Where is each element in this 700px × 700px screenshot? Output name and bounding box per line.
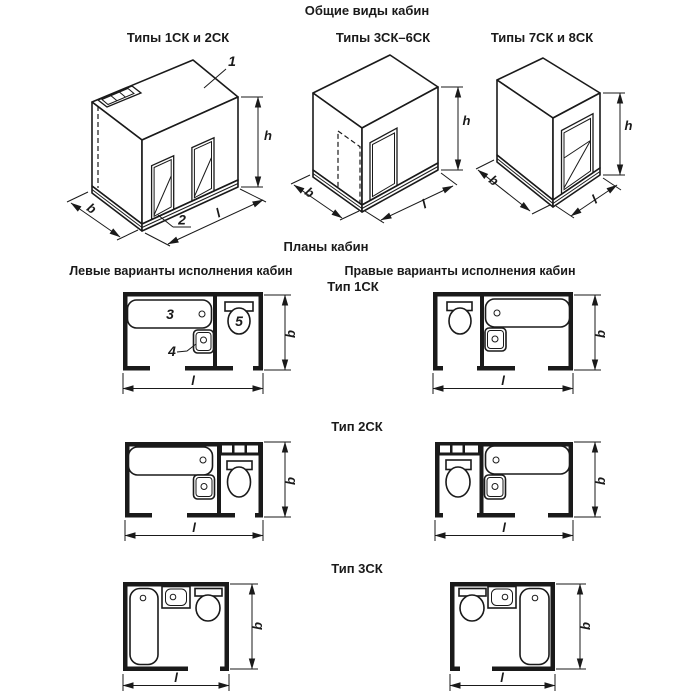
plan-1sk-left: 3 4 5 b l [115, 288, 300, 400]
iso-view-types-3sk-6sk: h b l [285, 45, 470, 230]
svg-text:l: l [213, 205, 223, 220]
bathtub [129, 447, 213, 475]
dimension-b: b [574, 295, 608, 370]
dimension-l: l [123, 670, 229, 691]
svg-text:4: 4 [167, 343, 176, 359]
svg-text:l: l [589, 192, 601, 207]
plan-3sk-left: b l [115, 578, 275, 696]
dimension-l: l [435, 520, 573, 541]
dimension-l: l [433, 373, 573, 394]
type-2sk-label: Тип 2СК [277, 420, 437, 435]
toilet [195, 589, 222, 622]
dimension-l: l [125, 520, 263, 541]
bathtub [486, 446, 570, 474]
plan-3sk-right: b l [442, 578, 602, 696]
svg-text:l: l [419, 196, 429, 211]
washbasin [194, 475, 215, 499]
drawing-canvas: Общие виды кабин Типы 1СК и 2СК Типы 3СК… [0, 0, 700, 700]
bathtub [130, 589, 158, 665]
svg-text:l: l [500, 670, 504, 685]
bathtub [520, 589, 549, 665]
dimension-b: b [264, 295, 298, 370]
svg-text:b: b [593, 330, 608, 338]
washbasin [194, 330, 214, 353]
dimension-l: l [450, 670, 555, 691]
svg-text:b: b [84, 200, 99, 217]
plan-2sk-right: b l [425, 435, 610, 547]
svg-text:h: h [463, 113, 471, 128]
vent-block [435, 442, 484, 456]
iso-view-types-7sk-8sk: h b l [475, 45, 650, 230]
dimension-h: h [603, 93, 633, 175]
svg-text:b: b [593, 477, 608, 485]
svg-text:l: l [192, 520, 196, 535]
svg-text:h: h [625, 118, 633, 133]
iso-label-1sk-2sk: Типы 1СК и 2СК [98, 31, 258, 46]
svg-text:b: b [283, 330, 298, 338]
plan-1sk-right: b l [425, 288, 610, 400]
washbasin [485, 475, 506, 499]
dimension-b: b [264, 442, 298, 517]
plan-2sk-left: b l [115, 435, 300, 547]
svg-text:l: l [501, 373, 505, 388]
toilet [446, 460, 471, 497]
left-variants-header: Левые варианты исполнения кабин [61, 264, 301, 278]
cabin-box [92, 60, 238, 224]
partition-wall [480, 292, 484, 371]
svg-text:1: 1 [228, 53, 236, 69]
svg-text:l: l [191, 373, 195, 388]
washbasin [485, 328, 506, 351]
bathtub [486, 299, 570, 327]
callout-toilet: 5 [235, 313, 243, 329]
right-variants-header: Правые варианты исполнения кабин [340, 264, 580, 278]
toilet [459, 589, 486, 622]
svg-text:b: b [283, 477, 298, 485]
svg-text:b: b [250, 622, 265, 630]
washbasin [162, 587, 190, 609]
dimension-h: h [441, 87, 471, 170]
svg-text:h: h [264, 128, 272, 143]
callout-bathtub: 3 [166, 306, 174, 322]
dimension-b: b [230, 584, 265, 669]
plans-section-title: Планы кабин [246, 240, 406, 255]
svg-text:l: l [174, 670, 178, 685]
svg-text:2: 2 [177, 212, 186, 228]
iso-view-types-1sk-2sk: 1 2 h b l [60, 48, 290, 248]
callout-washbasin: 4 [167, 343, 196, 359]
dimension-l: l [123, 373, 263, 394]
dimension-h: h [241, 97, 272, 187]
toilet [447, 302, 472, 334]
svg-text:b: b [578, 622, 593, 630]
toilet [227, 461, 252, 497]
partition-wall [213, 292, 217, 371]
dimension-b: b [556, 584, 593, 669]
svg-text:b: b [302, 184, 317, 201]
type-3sk-label: Тип 3СК [277, 562, 437, 577]
vent-block [217, 442, 263, 456]
iso-label-7sk-8sk: Типы 7СК и 8СК [462, 31, 622, 46]
washbasin [488, 587, 516, 609]
iso-label-3sk-6sk: Типы 3СК–6СК [303, 31, 463, 46]
page-title: Общие виды кабин [37, 4, 697, 19]
dimension-b: b [574, 442, 608, 517]
svg-text:l: l [502, 520, 506, 535]
